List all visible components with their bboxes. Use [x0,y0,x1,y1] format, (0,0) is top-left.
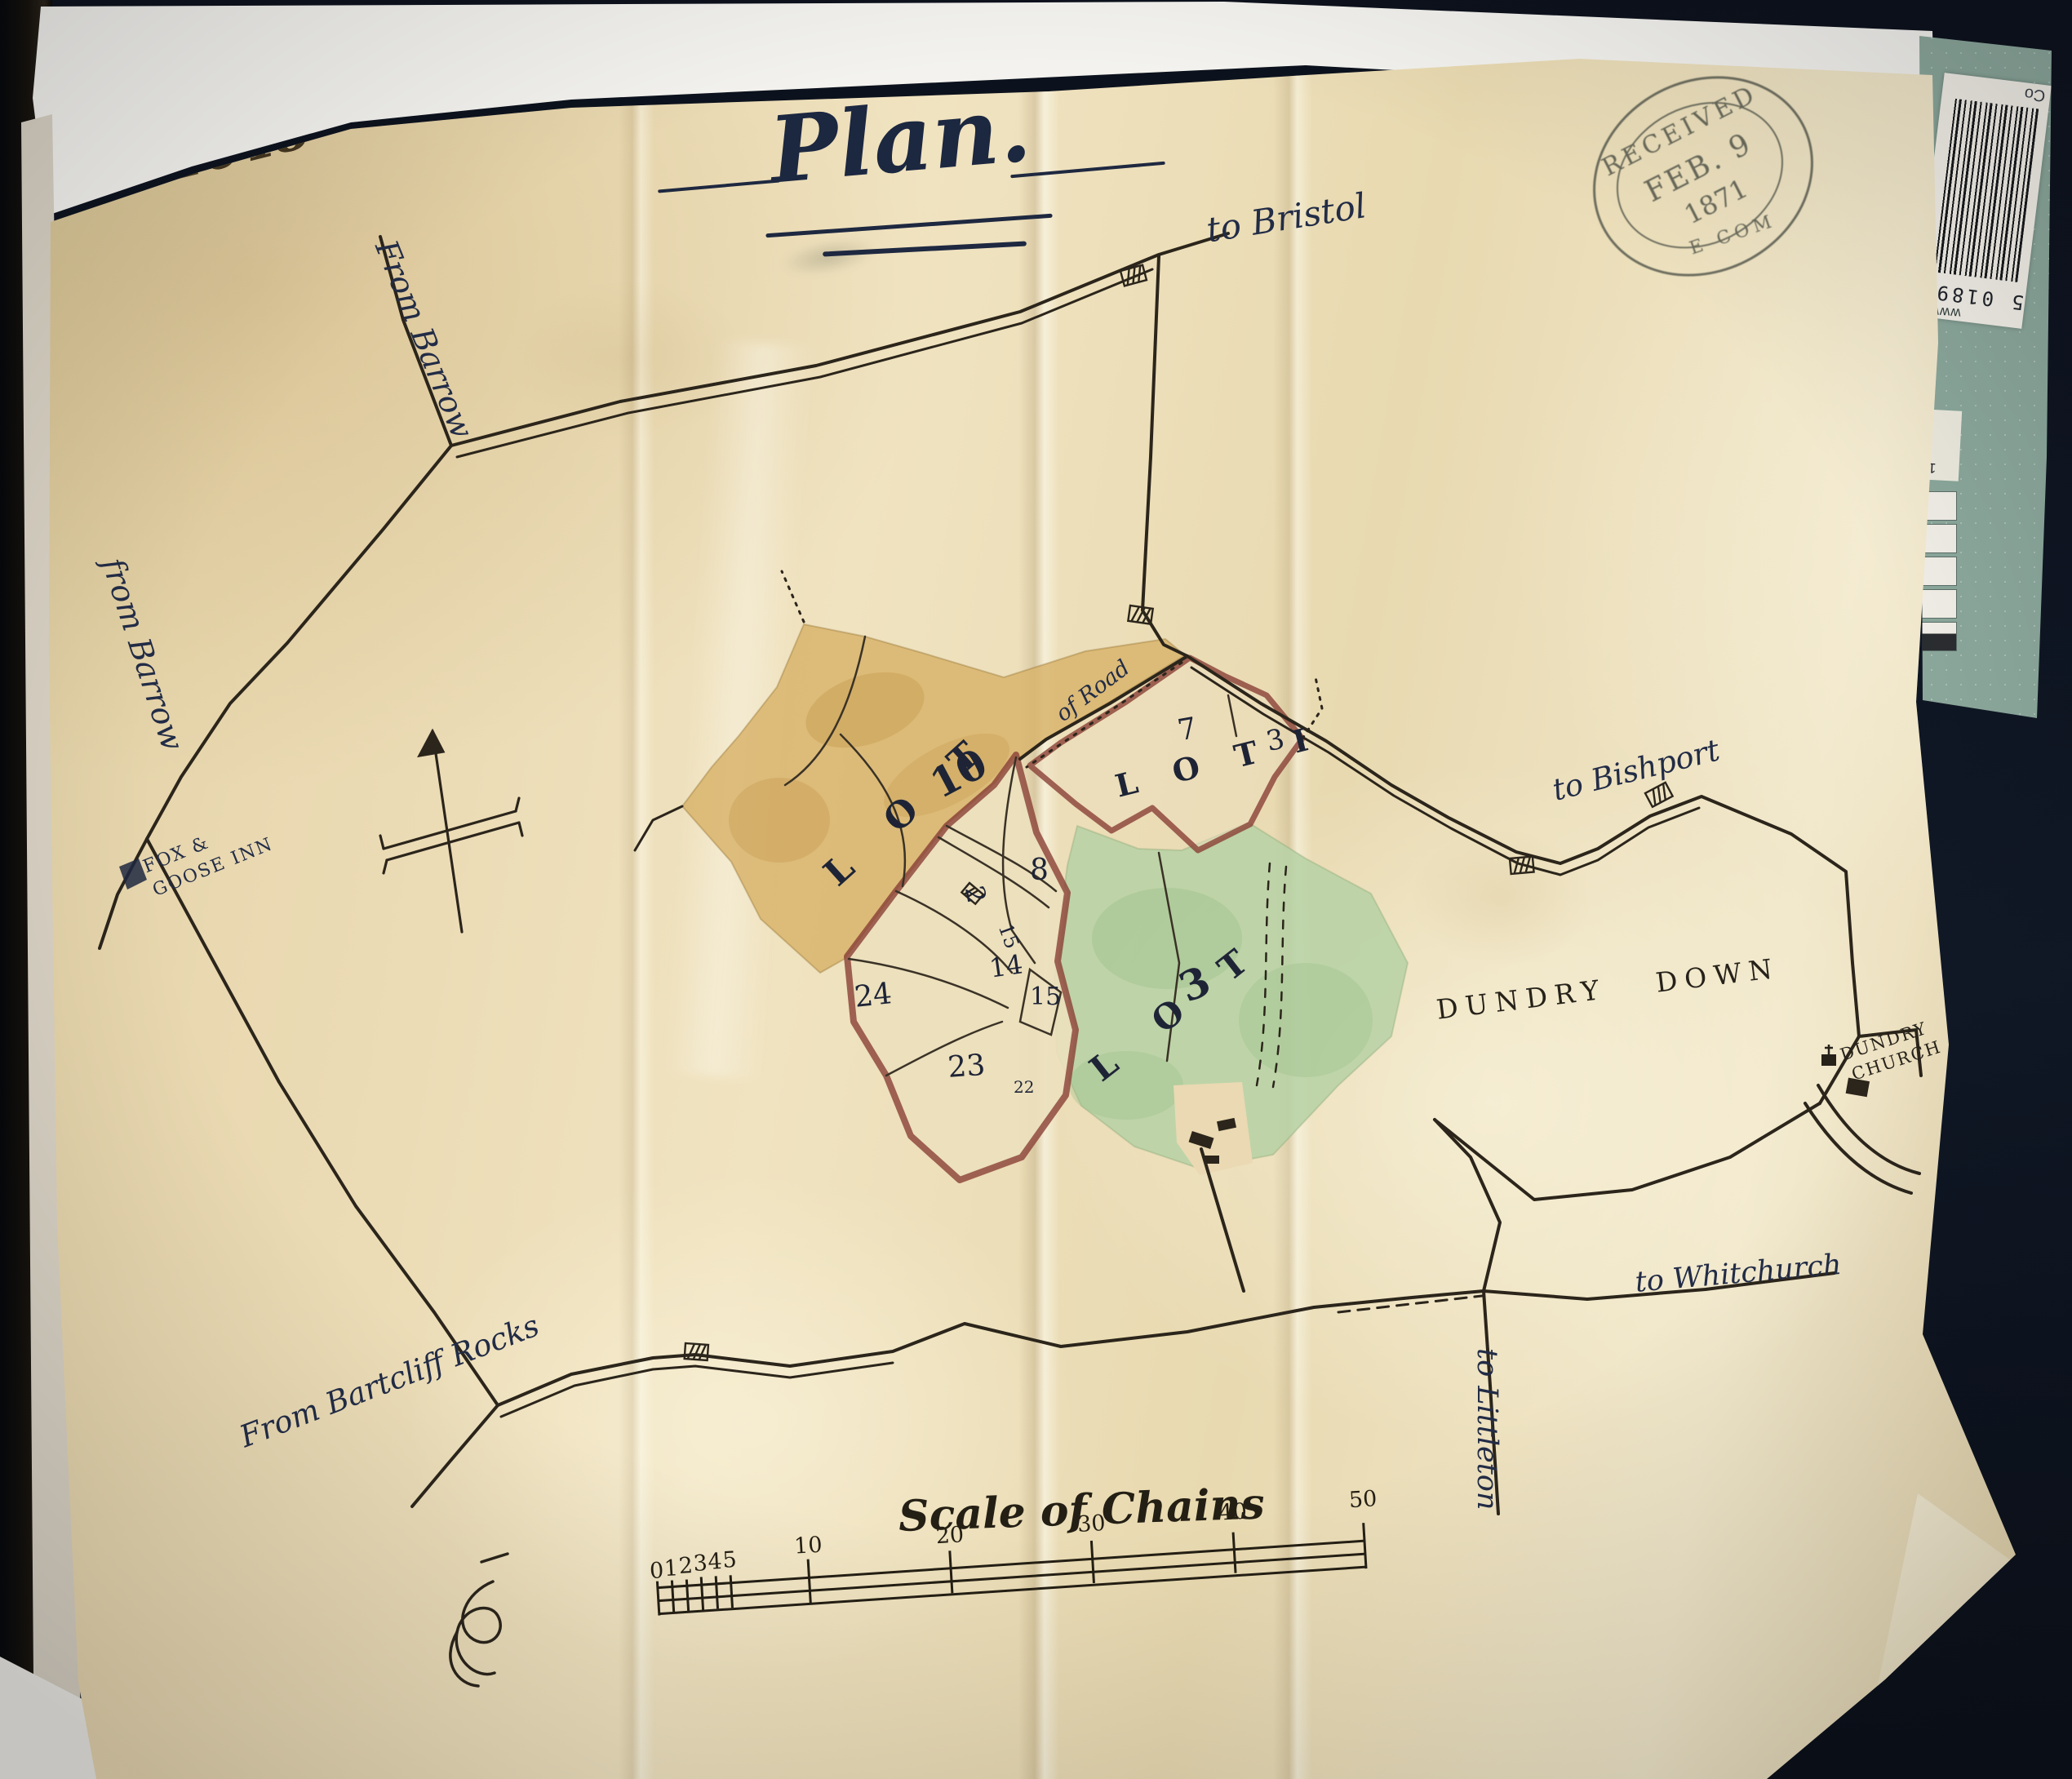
north-arrow [380,731,522,932]
vellum-sheet: 1648 Plan. RECEIVED FEB. 9 1871 E COM to… [0,0,2072,1779]
road-bottom [498,1273,1835,1405]
road-left [147,446,451,839]
parcel-23: 23 [947,1049,987,1085]
label-to-littleton: to Littleton [1471,1348,1503,1510]
hamlet-lane [1201,1149,1244,1291]
scale-tick-label: 10 [793,1533,818,1559]
scale-tick-label: 30 [1076,1511,1101,1537]
road-to-bristol [451,233,1228,446]
road-fox-spur [100,839,147,948]
parcel-24: 24 [853,977,894,1014]
parcel-22: 22 [1014,1077,1034,1097]
road-bartcliff [412,1405,498,1506]
church-icon [1821,1045,1836,1066]
parcel-8: 8 [1030,854,1049,887]
scale-tick-label: 50 [1348,1487,1373,1514]
flourish-monogram [450,1554,508,1686]
scale-tick-label: 5 [717,1547,742,1574]
parcel-15b: 15 [1030,983,1061,1011]
photographed-book-page: 5 01898 Co www. 1000 11 900 [0,0,2072,1779]
barcode-partial-text: Co [2024,83,2047,104]
plan-title: Plan. [765,75,1035,204]
lot3-area [1054,823,1408,1175]
road-vertical [1142,256,1187,656]
road-southwest [147,839,498,1405]
barcode-bars [1933,99,2039,282]
parcel-14: 14 [987,948,1025,983]
scale-tick-label: 20 [935,1523,960,1550]
scale-tick-label: 40 [1218,1499,1243,1526]
